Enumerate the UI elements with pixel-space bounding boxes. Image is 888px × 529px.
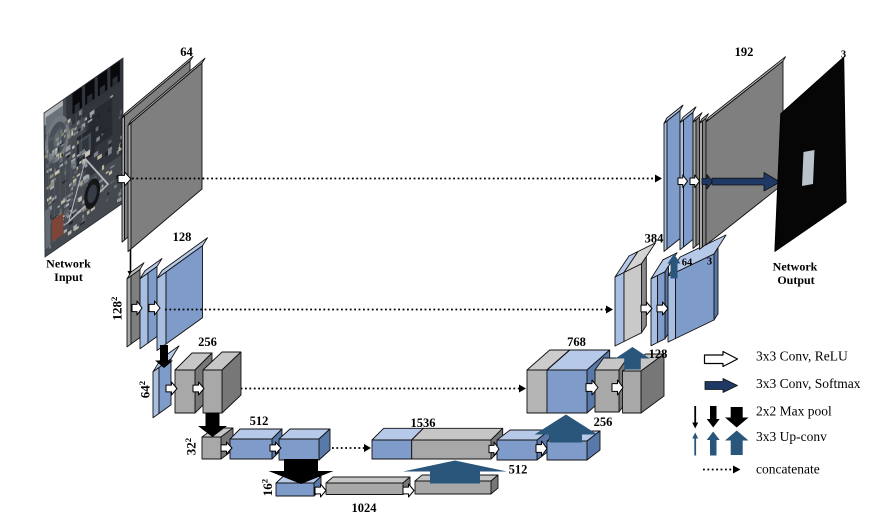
svg-text:192: 192 xyxy=(735,45,754,59)
svg-text:3x3 Conv, ReLU: 3x3 Conv, ReLU xyxy=(756,349,848,364)
svg-text:3x3 Conv, Softmax: 3x3 Conv, Softmax xyxy=(756,376,861,391)
svg-text:Input: Input xyxy=(54,270,83,284)
svg-text:512: 512 xyxy=(509,463,528,477)
svg-text:768: 768 xyxy=(567,335,586,349)
svg-text:64: 64 xyxy=(682,258,693,269)
svg-text:64: 64 xyxy=(180,45,193,59)
svg-text:3: 3 xyxy=(707,257,712,268)
svg-text:3x3 Up-conv: 3x3 Up-conv xyxy=(756,429,827,444)
svg-text:384: 384 xyxy=(645,232,665,246)
svg-text:Network: Network xyxy=(773,260,818,274)
svg-text:3: 3 xyxy=(841,50,846,61)
svg-text:1024: 1024 xyxy=(352,501,378,515)
svg-text:128: 128 xyxy=(649,347,668,361)
svg-text:128: 128 xyxy=(173,230,192,244)
svg-text:512: 512 xyxy=(250,414,269,428)
svg-text:2x2 Max pool: 2x2 Max pool xyxy=(756,404,832,419)
svg-text:concatenate: concatenate xyxy=(756,462,820,477)
svg-text:Network: Network xyxy=(46,257,91,271)
svg-text:Output: Output xyxy=(777,273,814,287)
svg-text:256: 256 xyxy=(594,415,613,429)
svg-text:256: 256 xyxy=(198,335,217,349)
svg-text:1536: 1536 xyxy=(411,416,436,430)
